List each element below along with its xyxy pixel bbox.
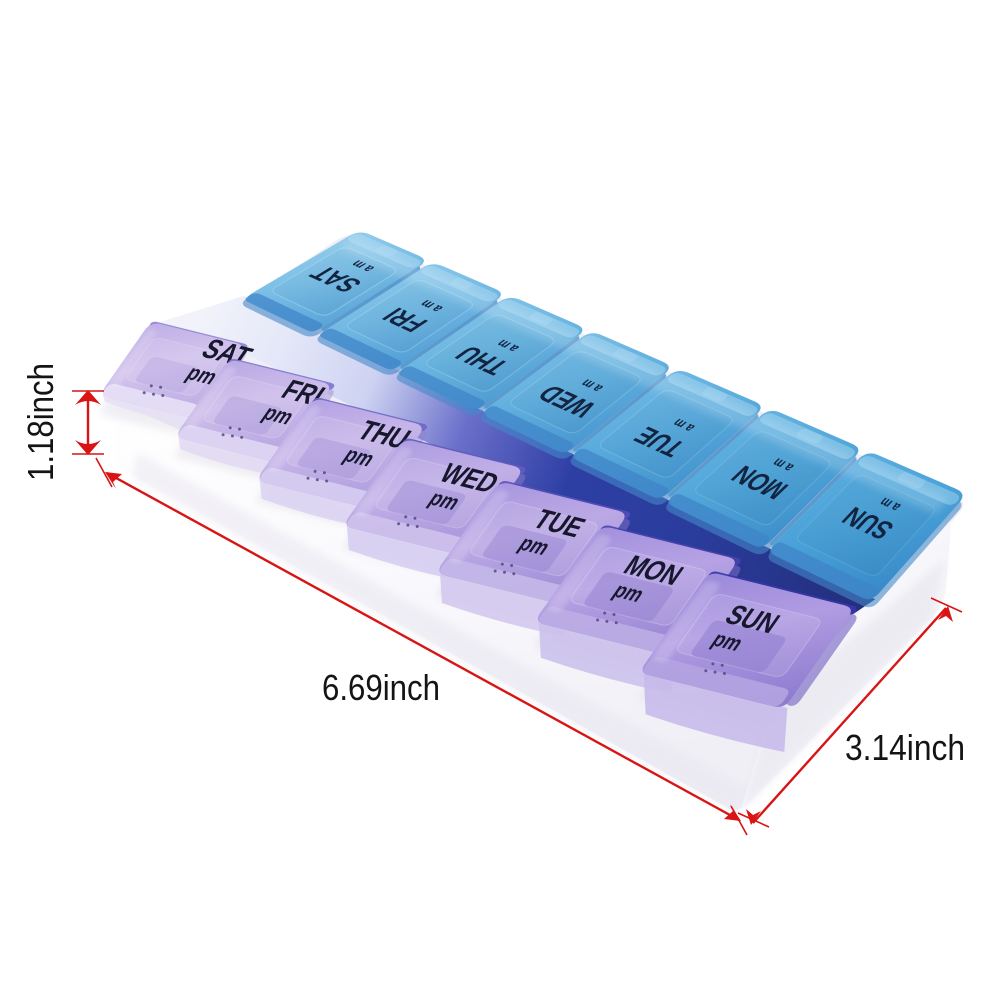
svg-text:6.69inch: 6.69inch bbox=[322, 667, 440, 708]
svg-text:1.18inch: 1.18inch bbox=[20, 363, 61, 481]
svg-text:3.14inch: 3.14inch bbox=[845, 727, 965, 768]
